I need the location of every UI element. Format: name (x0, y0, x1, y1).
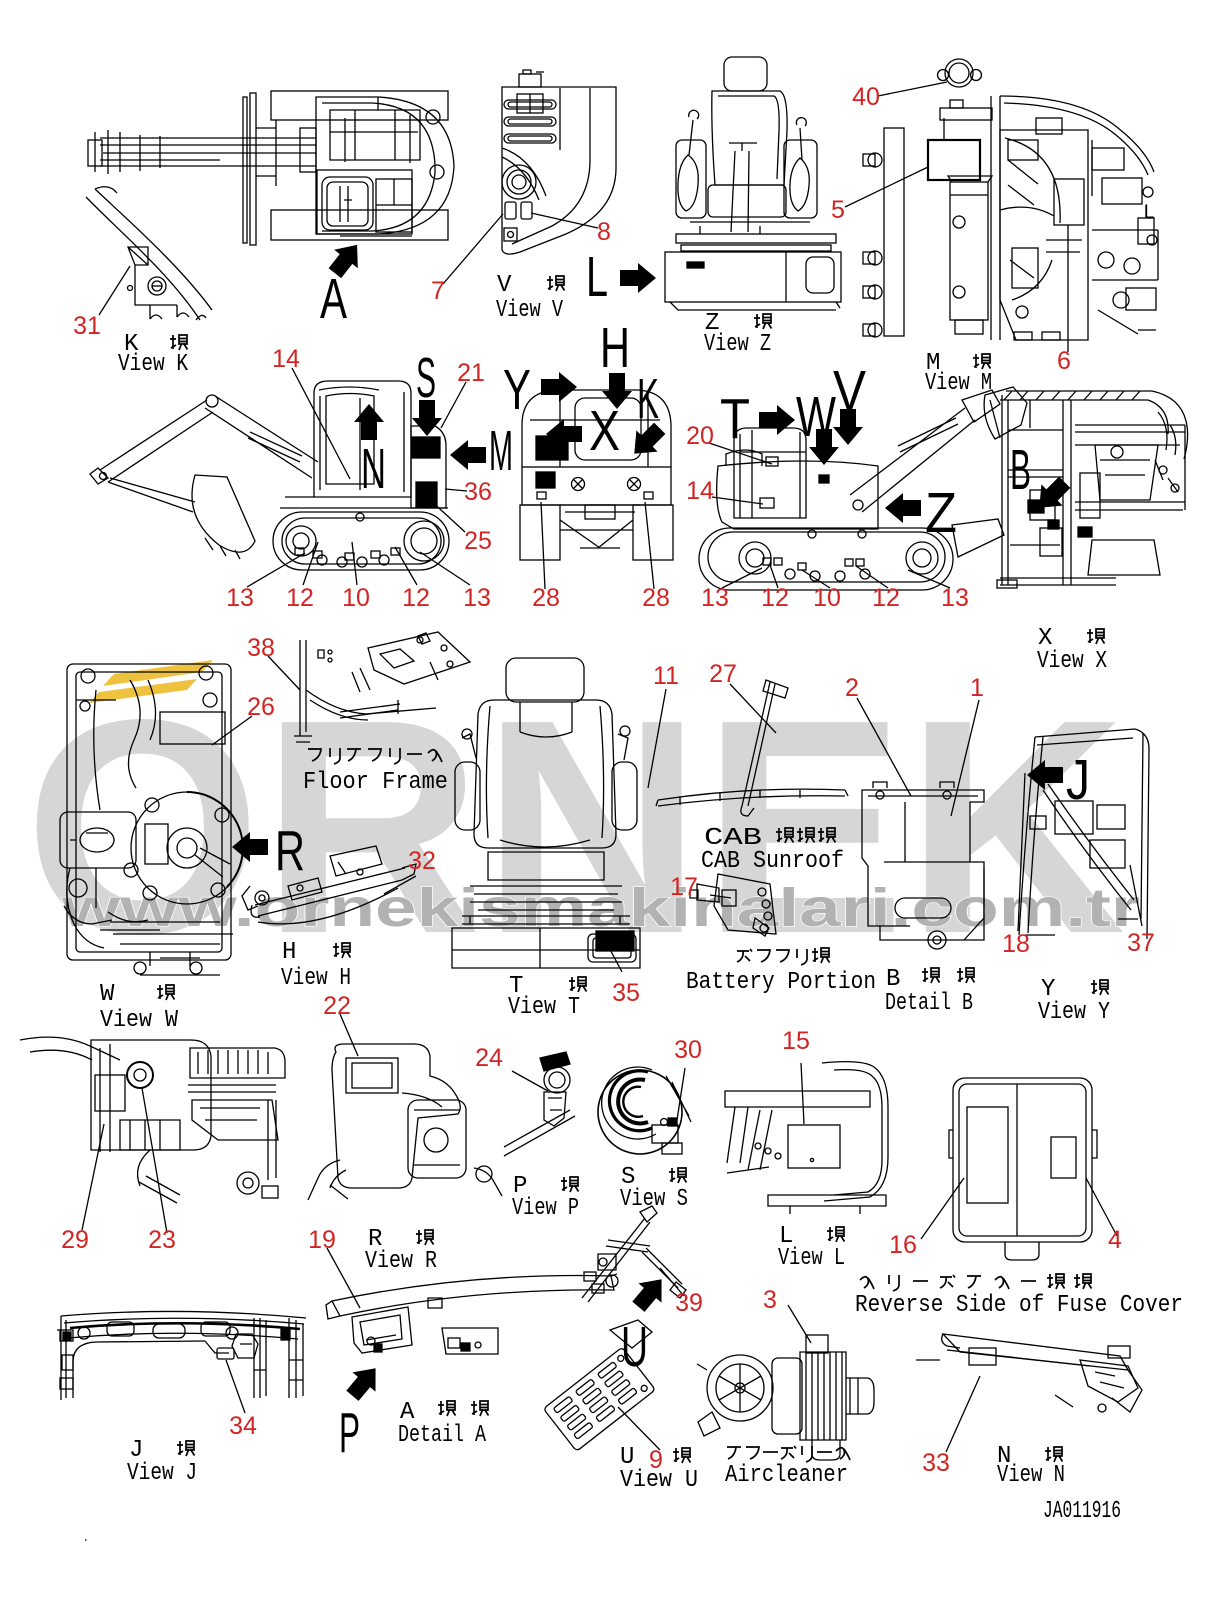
svg-text:B: B (886, 966, 900, 993)
svg-text:View J: View J (127, 1460, 197, 1487)
svg-text:View Z: View Z (704, 331, 771, 358)
svg-text:View R: View R (365, 1248, 437, 1275)
svg-text:30: 30 (674, 1036, 702, 1064)
svg-text:2: 2 (845, 674, 859, 702)
svg-text:R: R (275, 819, 305, 883)
svg-text:39: 39 (675, 1289, 703, 1317)
svg-text:JA011916: JA011916 (1043, 1498, 1121, 1525)
svg-text:15: 15 (782, 1027, 810, 1055)
svg-text:28: 28 (642, 584, 670, 612)
svg-text:11: 11 (653, 662, 679, 690)
svg-text:28: 28 (532, 584, 560, 612)
svg-text:H: H (600, 316, 630, 380)
svg-text:37: 37 (1127, 929, 1155, 957)
svg-text:Z: Z (925, 481, 957, 545)
svg-text:H: H (282, 939, 296, 966)
svg-text:26: 26 (247, 693, 275, 721)
svg-text:V: V (497, 272, 512, 299)
svg-text:13: 13 (226, 584, 254, 612)
svg-text:View K: View K (118, 351, 188, 378)
svg-text:View W: View W (100, 1007, 179, 1034)
svg-text:N: N (361, 437, 386, 501)
svg-text:B: B (1010, 438, 1031, 502)
svg-text:12: 12 (872, 584, 900, 612)
svg-text:18: 18 (1002, 930, 1030, 958)
svg-text:12: 12 (761, 584, 789, 612)
svg-text:Detail B: Detail B (885, 990, 973, 1017)
svg-text:16: 16 (889, 1231, 917, 1259)
svg-text:K: K (637, 367, 659, 431)
svg-text:6: 6 (1057, 347, 1071, 375)
svg-text:34: 34 (229, 1412, 257, 1440)
svg-text:33: 33 (922, 1449, 950, 1477)
svg-text:20: 20 (686, 422, 714, 450)
svg-text:ORNEK: ORNEK (24, 656, 1125, 997)
svg-text:23: 23 (148, 1226, 176, 1254)
svg-text:View T: View T (508, 994, 580, 1021)
svg-text:40: 40 (852, 83, 880, 111)
svg-text:3: 3 (763, 1286, 777, 1314)
svg-text:P: P (339, 1401, 360, 1465)
svg-text:A: A (320, 267, 347, 331)
svg-text:36: 36 (464, 478, 492, 506)
svg-text:View Y: View Y (1038, 999, 1110, 1026)
svg-text:38: 38 (247, 634, 275, 662)
svg-text:13: 13 (941, 584, 969, 612)
svg-text:U: U (621, 1315, 648, 1379)
svg-text:View V: View V (496, 297, 563, 324)
svg-text:Aircleaner: Aircleaner (725, 1462, 848, 1489)
svg-text:Reverse Side of Fuse Cover: Reverse Side of Fuse Cover (855, 1292, 1183, 1319)
svg-text:19: 19 (308, 1226, 336, 1254)
svg-text:W: W (100, 981, 115, 1008)
svg-text:L: L (586, 245, 608, 309)
svg-text:J: J (1066, 748, 1090, 812)
svg-text:12: 12 (402, 584, 430, 612)
svg-text:14: 14 (272, 345, 300, 373)
svg-text:14: 14 (686, 477, 714, 505)
svg-text:24: 24 (475, 1044, 503, 1072)
svg-text:L: L (1143, 202, 1155, 225)
svg-text:10: 10 (342, 584, 370, 612)
svg-text:Battery Portion: Battery Portion (686, 969, 876, 996)
svg-text:View X: View X (1037, 648, 1107, 675)
svg-text:View H: View H (281, 965, 351, 992)
svg-text:Y: Y (503, 358, 531, 422)
svg-text:View L: View L (778, 1245, 845, 1272)
svg-text:View P: View P (512, 1195, 579, 1222)
svg-text:25: 25 (464, 527, 492, 555)
svg-text:M: M (489, 419, 513, 483)
svg-text:Floor Frame: Floor Frame (303, 769, 448, 796)
svg-text:32: 32 (408, 847, 436, 875)
svg-text:13: 13 (701, 584, 729, 612)
svg-text:35: 35 (612, 979, 640, 1007)
svg-text:5: 5 (831, 196, 845, 224)
svg-text:Detail A: Detail A (398, 1422, 486, 1449)
svg-text:8: 8 (597, 218, 611, 246)
svg-text:27: 27 (709, 660, 737, 688)
svg-text:12: 12 (286, 584, 314, 612)
svg-text:10: 10 (813, 584, 841, 612)
svg-text:CAB Sunroof: CAB Sunroof (701, 848, 844, 875)
svg-text:T: T (720, 387, 750, 451)
svg-text:7: 7 (431, 277, 445, 305)
svg-text:1: 1 (970, 674, 984, 702)
svg-text:View N: View N (997, 1462, 1065, 1489)
svg-text:13: 13 (463, 584, 491, 612)
svg-text:21: 21 (457, 359, 485, 387)
svg-text:17: 17 (670, 873, 698, 901)
svg-text:29: 29 (61, 1226, 89, 1254)
svg-text:31: 31 (73, 312, 101, 340)
svg-text:9: 9 (649, 1446, 663, 1474)
svg-text:X: X (589, 399, 620, 463)
svg-text:4: 4 (1108, 1226, 1122, 1254)
svg-text:22: 22 (323, 992, 351, 1020)
